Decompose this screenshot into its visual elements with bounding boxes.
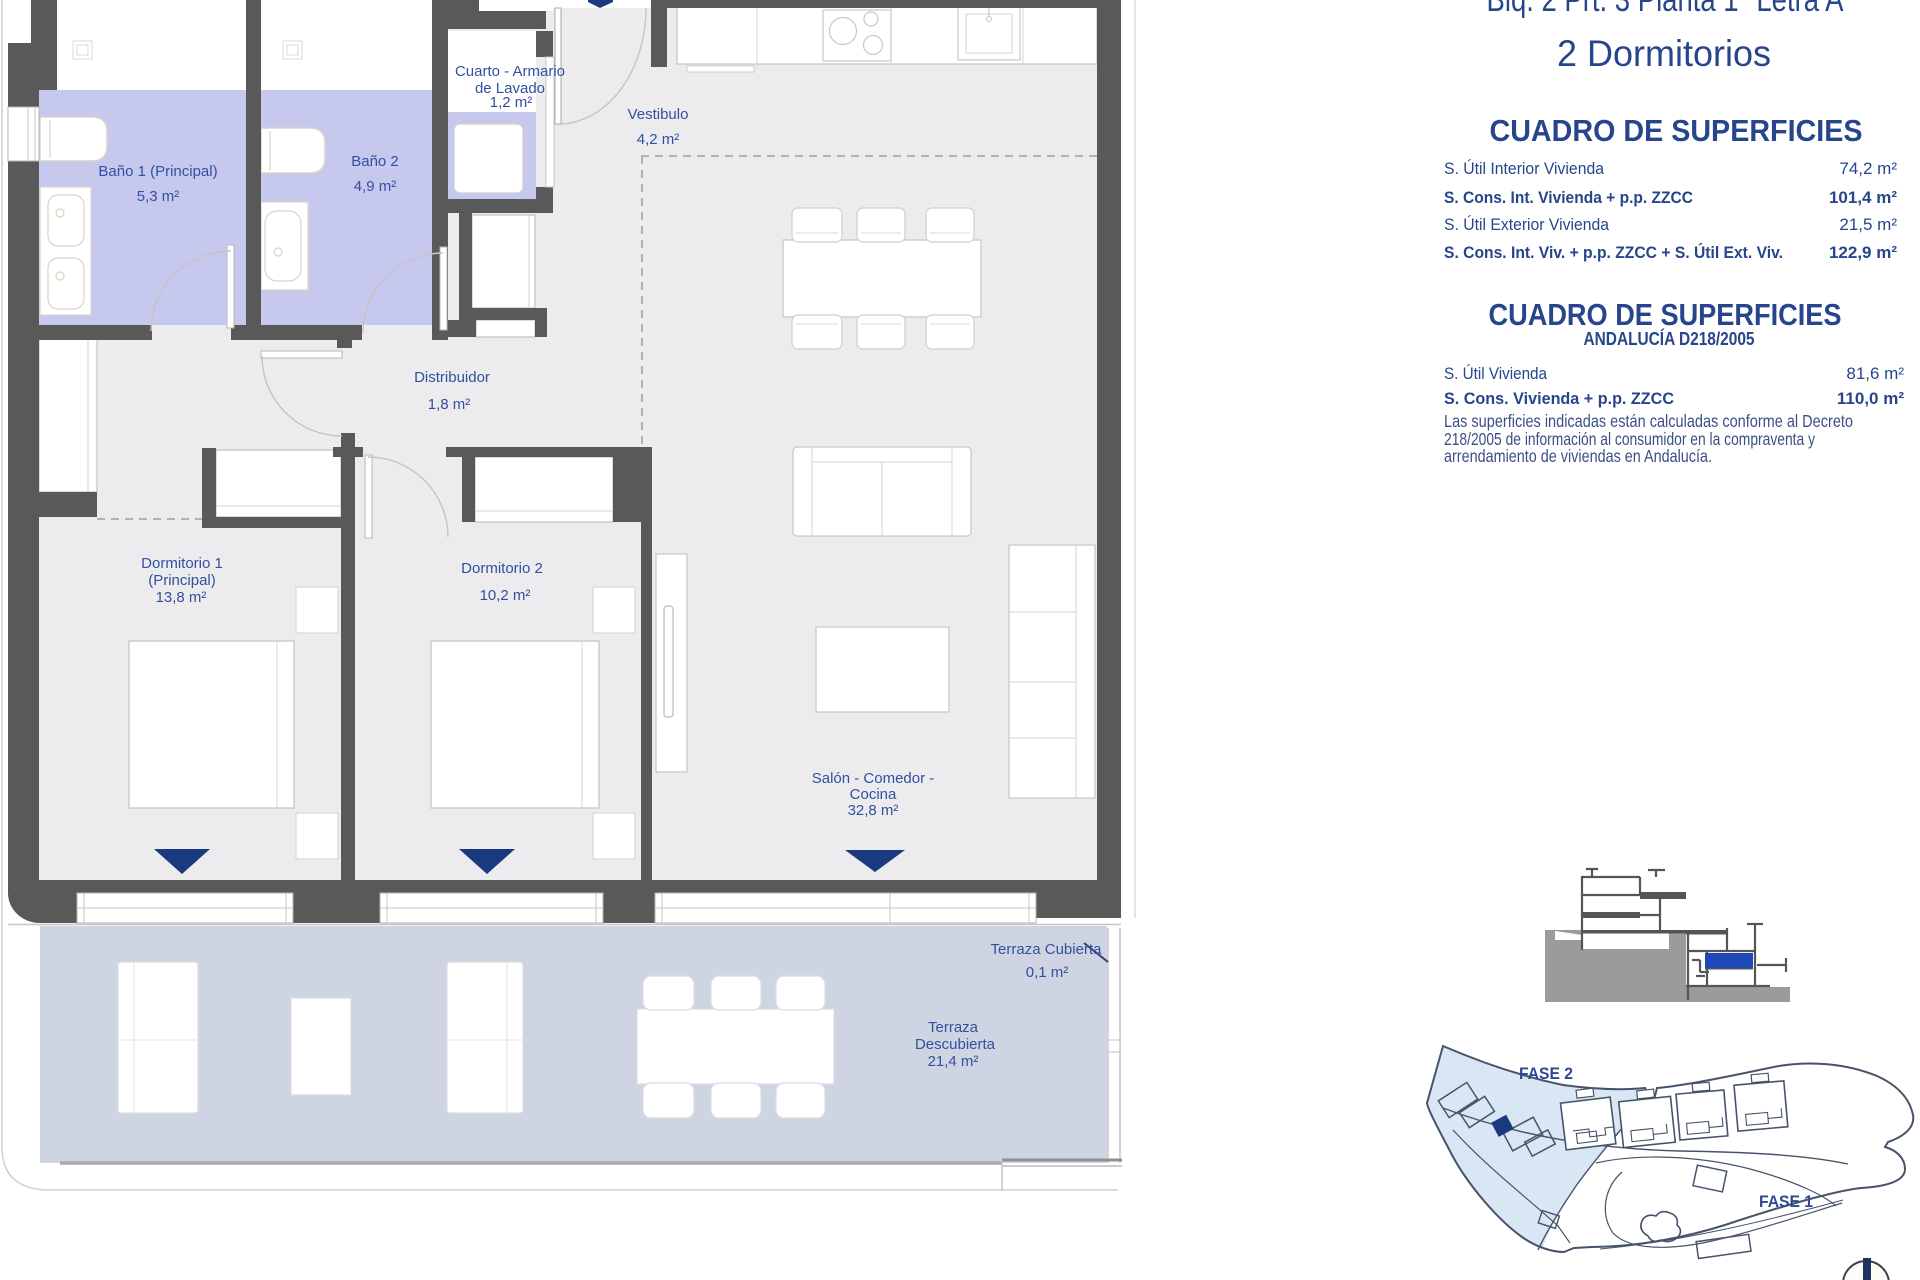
- svg-text:1,8 m²: 1,8 m²: [428, 396, 471, 413]
- svg-text:S. Útil Interior Vivienda: S. Útil Interior Vivienda: [1444, 159, 1604, 178]
- svg-text:(Principal): (Principal): [148, 572, 216, 589]
- svg-text:74,2 m²: 74,2 m²: [1839, 159, 1897, 178]
- svg-text:S. Útil Exterior Vivienda: S. Útil Exterior Vivienda: [1444, 215, 1609, 234]
- svg-text:Blq. 2 Prt. 3 Planta 1ª Letra: Blq. 2 Prt. 3 Planta 1ª Letra A: [1487, 0, 1844, 19]
- svg-text:2 Dormitorios: 2 Dormitorios: [1557, 33, 1771, 74]
- svg-text:110,0 m²: 110,0 m²: [1837, 389, 1904, 408]
- svg-text:4,2 m²: 4,2 m²: [637, 131, 680, 148]
- svg-text:Cocina: Cocina: [850, 786, 897, 803]
- svg-text:Baño 2: Baño 2: [351, 153, 399, 170]
- svg-text:Salón - Comedor -: Salón - Comedor -: [812, 770, 935, 787]
- svg-text:Cuarto - Armario: Cuarto - Armario: [455, 63, 565, 80]
- svg-text:Terraza Cubierta: Terraza Cubierta: [991, 941, 1103, 958]
- svg-text:10,2 m²: 10,2 m²: [480, 587, 531, 604]
- svg-text:FASE 2: FASE 2: [1519, 1064, 1573, 1083]
- svg-text:5,3 m²: 5,3 m²: [137, 188, 180, 205]
- svg-text:Terraza: Terraza: [928, 1019, 979, 1036]
- svg-text:Dormitorio 1: Dormitorio 1: [141, 555, 223, 572]
- svg-text:13,8 m²: 13,8 m²: [156, 589, 207, 606]
- svg-text:1,2 m²: 1,2 m²: [490, 94, 533, 111]
- svg-text:21,5 m²: 21,5 m²: [1839, 215, 1897, 234]
- svg-text:Las superficies indicadas está: Las superficies indicadas están calculad…: [1444, 411, 1853, 431]
- svg-text:101,4 m²: 101,4 m²: [1829, 188, 1897, 207]
- svg-text:S. Útil Vivienda: S. Útil Vivienda: [1444, 364, 1547, 383]
- svg-text:81,6 m²: 81,6 m²: [1846, 364, 1904, 383]
- svg-text:S. Cons. Int. Viv. + p.p. ZZCC: S. Cons. Int. Viv. + p.p. ZZCC + S. Útil…: [1444, 243, 1783, 262]
- svg-text:0,1 m²: 0,1 m²: [1026, 964, 1069, 981]
- svg-text:arrendamiento de viviendas en: arrendamiento de viviendas en Andalucía.: [1444, 446, 1712, 466]
- svg-text:Vestibulo: Vestibulo: [628, 106, 689, 123]
- svg-text:FASE 1: FASE 1: [1759, 1192, 1813, 1211]
- svg-text:S. Cons. Int. Vivienda + p.p.: S. Cons. Int. Vivienda + p.p. ZZCC: [1444, 188, 1693, 207]
- svg-text:122,9 m²: 122,9 m²: [1829, 243, 1897, 262]
- svg-text:Descubierta: Descubierta: [915, 1036, 996, 1053]
- svg-text:CUADRO DE SUPERFICIES: CUADRO DE SUPERFICIES: [1490, 113, 1863, 148]
- svg-text:S. Cons. Vivienda + p.p. ZZCC: S. Cons. Vivienda + p.p. ZZCC: [1444, 389, 1674, 408]
- svg-text:21,4 m²: 21,4 m²: [928, 1053, 979, 1070]
- svg-text:ANDALUCÍA D218/2005: ANDALUCÍA D218/2005: [1584, 328, 1755, 349]
- svg-text:4,9 m²: 4,9 m²: [354, 178, 397, 195]
- svg-text:32,8 m²: 32,8 m²: [848, 802, 899, 819]
- svg-text:Baño 1 (Principal): Baño 1 (Principal): [98, 163, 217, 180]
- svg-text:Distribuidor: Distribuidor: [414, 369, 490, 386]
- svg-text:CUADRO DE SUPERFICIES: CUADRO DE SUPERFICIES: [1489, 297, 1842, 332]
- svg-text:Dormitorio 2: Dormitorio 2: [461, 560, 543, 577]
